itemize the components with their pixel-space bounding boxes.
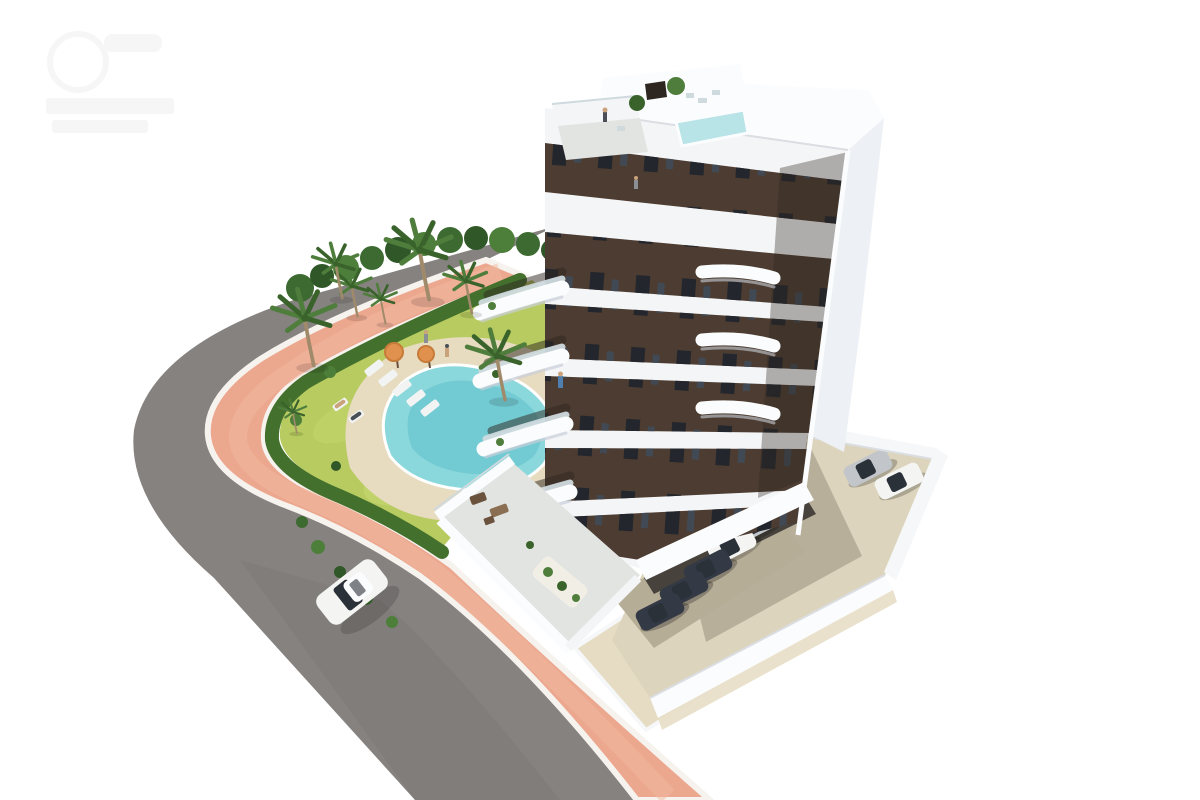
balcony-person — [634, 176, 638, 189]
rooftop-plant — [667, 77, 685, 95]
terrace-person — [558, 372, 563, 389]
rooftop-plant — [629, 95, 645, 111]
render-canvas — [0, 0, 1200, 800]
rooftop-chimney — [645, 81, 667, 100]
rooftop-person — [603, 108, 608, 123]
